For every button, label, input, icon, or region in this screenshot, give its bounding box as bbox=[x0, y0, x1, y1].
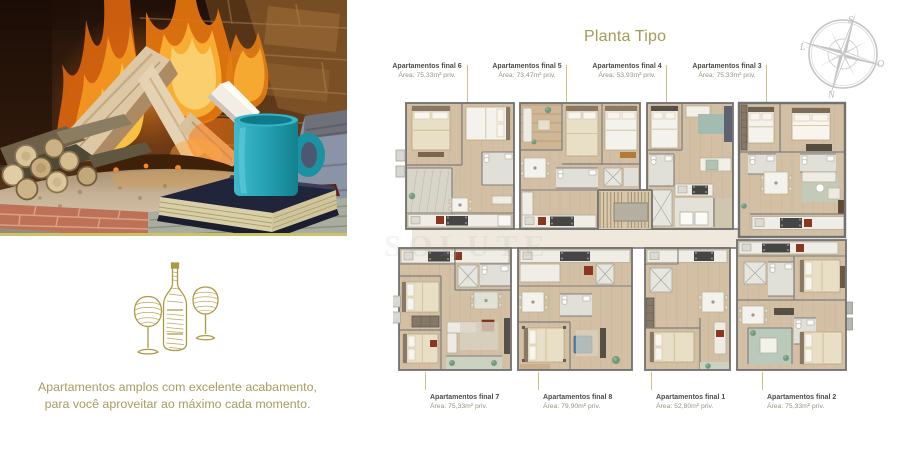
svg-text:S: S bbox=[848, 15, 853, 26]
svg-text:O: O bbox=[877, 59, 884, 70]
svg-text:L: L bbox=[799, 42, 806, 53]
